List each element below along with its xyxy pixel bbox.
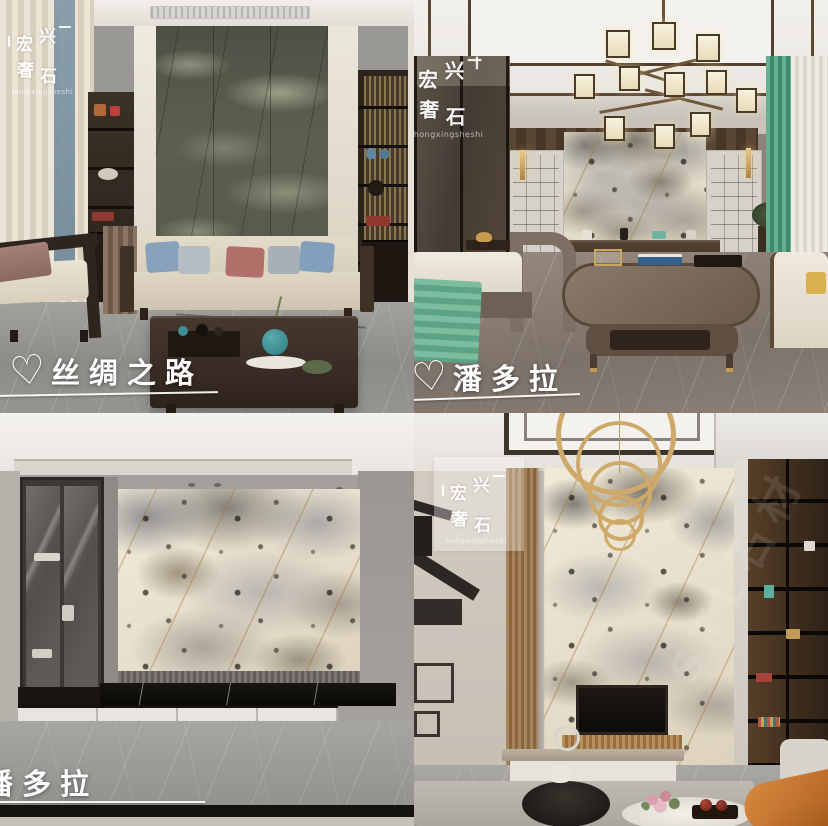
wall-shadow — [538, 468, 546, 765]
shelf-item-gold — [786, 629, 800, 639]
throw-pillow — [145, 241, 181, 273]
marble-gold-veins — [564, 132, 706, 242]
glass-reflection — [64, 486, 98, 700]
throw-pillow — [268, 246, 300, 274]
sofa-leg — [140, 308, 148, 320]
marble-gold-veins — [118, 489, 360, 675]
brand-char: 宏 — [16, 30, 33, 55]
light-floor-border — [0, 817, 414, 826]
lantern-shade — [604, 116, 625, 141]
round-ornament — [368, 180, 384, 196]
brand-char: 石 — [474, 511, 491, 536]
shelf-item-red-books — [756, 673, 772, 682]
shelf-ornament — [110, 106, 120, 116]
caption-text: 潘多拉 — [0, 761, 98, 803]
white-armchair — [770, 252, 828, 348]
brand-char: 石 — [446, 100, 466, 129]
ac-vent — [150, 6, 310, 19]
glass-terrarium — [594, 249, 622, 266]
lantern-shade — [690, 112, 711, 137]
heart-icon: ♡ — [7, 346, 49, 397]
black-side-table — [522, 781, 610, 826]
shelf-books — [32, 649, 52, 658]
wall-frame — [414, 516, 432, 556]
wall-sconce — [746, 148, 751, 178]
black-marble-bench — [100, 683, 396, 706]
lantern-shade — [574, 74, 595, 99]
brand-latin: hongxingsheshi — [414, 130, 483, 139]
coffee-table-shelf — [610, 330, 710, 350]
brand-char: 兴 — [473, 471, 490, 496]
wall-sconce — [520, 150, 525, 180]
red-fruit — [716, 800, 727, 811]
sofa-seat — [128, 272, 366, 310]
console-decor — [582, 230, 592, 240]
brand-char: 宏 — [450, 479, 467, 504]
red-fruit — [700, 799, 712, 811]
blue-vase — [366, 148, 376, 159]
brand-watermark: 宏 兴 奢 石 hongxingsheshi — [416, 52, 485, 151]
teal-vase — [262, 329, 288, 355]
console-decor — [652, 231, 666, 239]
gold-bowl — [476, 232, 492, 242]
white-sculpture — [548, 765, 572, 783]
gold-pillow — [806, 272, 826, 294]
glass-wardrobe-cabinet — [20, 477, 104, 705]
spotlight — [214, 483, 221, 487]
table-leg — [166, 404, 176, 413]
tea-cup — [214, 327, 223, 336]
brand-latin: hongxingsheshi — [446, 537, 507, 545]
shelf-figurine — [62, 605, 74, 621]
lantern-shade — [696, 34, 720, 62]
photo-silk-road-room: 宏 兴 奢 石 hongxingsheshi ♡ 丝绸之路 — [0, 0, 414, 413]
black-marble-veins — [100, 683, 396, 706]
brand-char: 兴 — [39, 22, 56, 47]
caption-text: 丝绸之路 — [51, 350, 203, 392]
armchair-legs — [10, 330, 88, 342]
chandelier-ring — [604, 519, 636, 551]
lantern-shade — [606, 30, 630, 58]
green-decor — [302, 360, 332, 374]
table-leg — [590, 354, 597, 372]
brand-char: 石 — [40, 62, 57, 87]
flower-arrangement — [640, 789, 684, 815]
marble-tv-wall — [564, 132, 706, 242]
ring-ornament — [554, 725, 580, 751]
brand-char: 宏 — [418, 64, 438, 93]
shelf-ornament — [94, 104, 106, 116]
lantern-shade — [706, 70, 727, 95]
side-wall — [0, 471, 20, 721]
patagonia-marble-wall — [118, 489, 360, 675]
red-books — [92, 212, 114, 221]
coral-ornament — [98, 168, 118, 180]
low-drawer-cabinet — [18, 705, 338, 722]
lantern-shade — [652, 22, 676, 50]
shelf-item-white — [804, 541, 815, 551]
caption-text: 潘多拉 — [453, 356, 567, 398]
table-leg — [726, 354, 733, 372]
white-plate — [246, 356, 306, 369]
glass-door — [26, 486, 60, 700]
black-floor-border — [0, 805, 414, 817]
photo-caption: ♡ 潘多拉 — [414, 354, 567, 400]
throw-pillow — [178, 246, 210, 274]
staircase-landing — [414, 599, 462, 625]
brand-char: 奢 — [419, 93, 439, 122]
table-tray — [694, 255, 742, 267]
brand-watermark: 宏 兴 奢 石 hongxingsheshi — [448, 469, 508, 555]
watermark-line — [8, 36, 10, 47]
brand-char: 兴 — [445, 54, 465, 83]
knit-throw — [414, 278, 482, 364]
ceiling-recess — [14, 459, 352, 475]
grey-pillar — [104, 477, 118, 707]
photo-caption: 潘多拉 — [0, 761, 98, 803]
media-console-body — [510, 761, 676, 781]
throw-pillow — [299, 241, 335, 273]
red-books — [366, 216, 390, 226]
watermark-line — [468, 59, 482, 61]
table-leg — [334, 404, 344, 413]
media-console-top — [502, 749, 684, 761]
round-coffee-table — [562, 263, 760, 327]
fruit-tray — [692, 805, 738, 819]
black-marble-bench — [18, 687, 100, 706]
lantern-shade — [664, 72, 685, 97]
shelf-item-book-row — [758, 717, 780, 727]
brand-char: 奢 — [17, 56, 34, 81]
tea-cup — [178, 326, 188, 336]
lantern-shade — [654, 124, 675, 149]
photo-pandora-lounge: 宏 兴 奢 石 hongxingsheshi ♡ 潘多拉 — [414, 0, 828, 413]
caption-underline — [0, 801, 205, 803]
throw-pillow — [225, 246, 265, 278]
shelf-item-teal-vase — [764, 585, 774, 598]
fireplace — [576, 685, 668, 735]
fret-decor — [414, 711, 440, 737]
photo-collage: 宏 兴 奢 石 hongxingsheshi ♡ 丝绸之路 — [0, 0, 828, 826]
sofa-arm-frame — [120, 246, 134, 312]
tea-pot — [196, 324, 208, 336]
watermark-line — [59, 26, 71, 28]
brand-latin: hongxingsheshi — [12, 88, 73, 96]
photo-fireplace-wall-room: STL石材 宏 兴 奢 石 hongxingsheshi — [414, 413, 828, 826]
console-decor — [686, 230, 696, 239]
spotlight — [188, 483, 195, 487]
lantern-shade — [736, 88, 757, 113]
photo-caption: ♡ 丝绸之路 — [10, 348, 203, 394]
glass-door — [64, 486, 98, 700]
lantern-shade — [619, 66, 640, 91]
brand-char: 奢 — [451, 505, 468, 530]
stacked-books — [638, 254, 682, 265]
heart-icon: ♡ — [414, 352, 451, 403]
blue-vase — [380, 149, 389, 159]
watermark-line — [442, 485, 444, 496]
sofa-arm-frame — [360, 246, 374, 312]
glass-reflection — [26, 486, 60, 700]
brand-watermark: 宏 兴 奢 石 hongxingsheshi — [14, 20, 74, 106]
photo-pandora-feature-wall: 潘多拉 — [0, 413, 414, 826]
console-decor — [620, 228, 628, 240]
shelf-books — [34, 553, 60, 561]
fret-decor — [414, 663, 454, 703]
watermark-line — [493, 475, 505, 477]
